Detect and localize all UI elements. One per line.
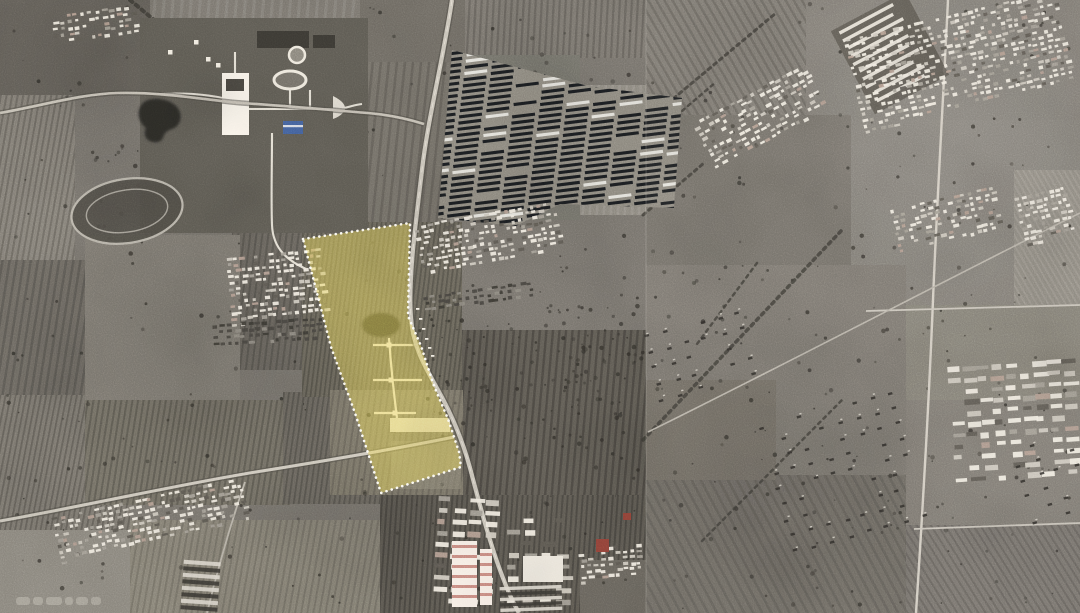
satellite-map-figure — [0, 0, 1080, 613]
satellite-map-canvas — [0, 0, 1080, 613]
grain-overlay — [0, 0, 1080, 613]
